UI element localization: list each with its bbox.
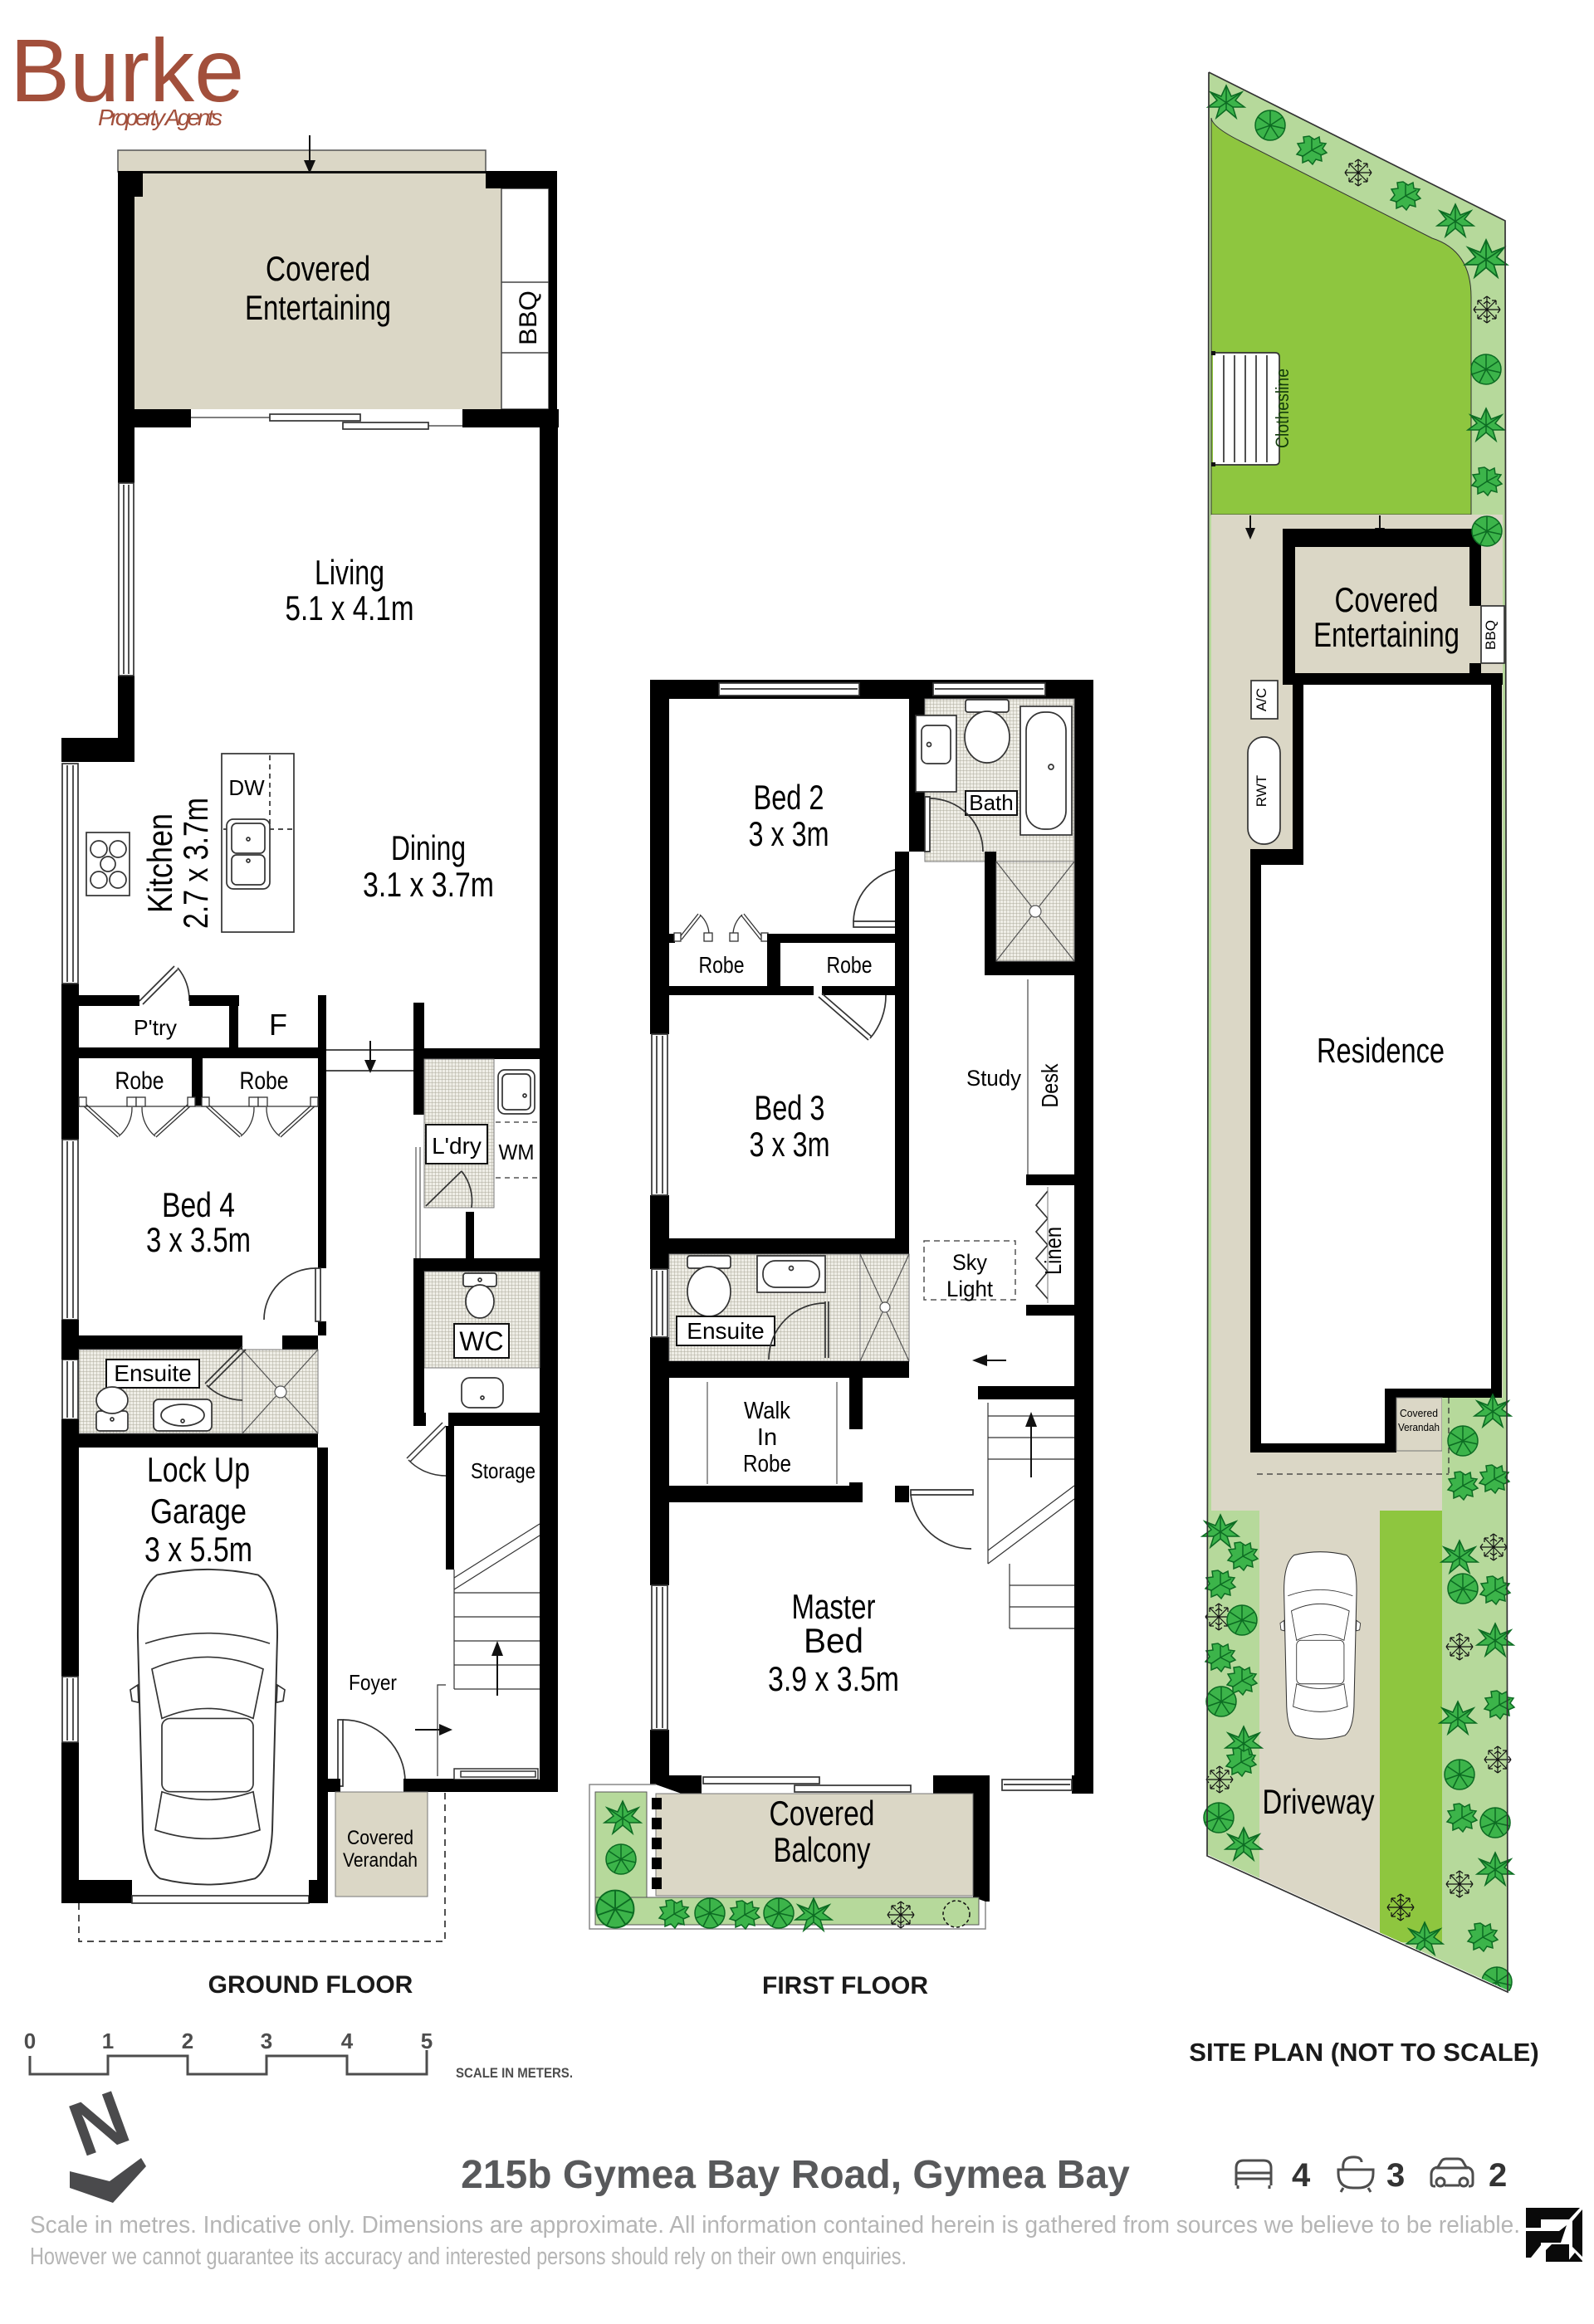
svg-text:RWT: RWT xyxy=(1254,775,1269,807)
svg-text:L'dry: L'dry xyxy=(432,1133,482,1159)
svg-text:However we cannot guarantee it: However we cannot guarantee its accuracy… xyxy=(30,2243,907,2270)
svg-text:A/C: A/C xyxy=(1254,688,1269,711)
svg-text:2.7 x 3.7m: 2.7 x 3.7m xyxy=(176,798,215,929)
svg-text:Foyer: Foyer xyxy=(349,1670,397,1695)
svg-text:Desk: Desk xyxy=(1037,1063,1063,1108)
svg-text:Living: Living xyxy=(315,553,384,592)
svg-text:SCALE IN METERS.: SCALE IN METERS. xyxy=(456,2065,573,2081)
svg-text:Robe: Robe xyxy=(699,952,745,978)
svg-text:Garage: Garage xyxy=(150,1492,247,1531)
svg-text:Balcony: Balcony xyxy=(774,1830,871,1869)
svg-text:Robe: Robe xyxy=(743,1451,791,1477)
svg-text:FIRST FLOOR: FIRST FLOOR xyxy=(762,1972,928,1999)
svg-text:DW: DW xyxy=(228,775,265,800)
svg-text:Study: Study xyxy=(966,1066,1021,1091)
svg-text:Covered: Covered xyxy=(1400,1407,1438,1419)
svg-text:Robe: Robe xyxy=(240,1067,289,1095)
svg-text:BBQ: BBQ xyxy=(515,290,542,345)
svg-text:3: 3 xyxy=(1386,2157,1405,2194)
svg-text:Kitchen: Kitchen xyxy=(140,813,179,913)
svg-text:BBQ: BBQ xyxy=(1483,620,1499,650)
svg-text:Light: Light xyxy=(946,1277,993,1301)
svg-text:WC: WC xyxy=(459,1326,503,1356)
svg-text:1: 1 xyxy=(102,2029,114,2053)
svg-text:5: 5 xyxy=(421,2029,433,2053)
svg-text:Covered: Covered xyxy=(266,249,370,288)
svg-text:Covered: Covered xyxy=(347,1827,413,1849)
svg-text:F: F xyxy=(269,1008,287,1042)
svg-text:4: 4 xyxy=(341,2029,354,2053)
svg-text:Robe: Robe xyxy=(827,952,873,978)
svg-text:Linen: Linen xyxy=(1040,1227,1066,1275)
svg-text:WM: WM xyxy=(499,1140,535,1164)
svg-text:GROUND FLOOR: GROUND FLOOR xyxy=(208,1971,413,1999)
svg-text:215b Gymea Bay Road, Gymea Bay: 215b Gymea Bay Road, Gymea Bay xyxy=(461,2153,1130,2197)
svg-text:Lock Up: Lock Up xyxy=(147,1450,250,1489)
svg-text:Ensuite: Ensuite xyxy=(687,1318,764,1344)
svg-text:Bed 4: Bed 4 xyxy=(162,1185,235,1224)
svg-text:Dining: Dining xyxy=(391,828,466,867)
svg-text:3 x 5.5m: 3 x 5.5m xyxy=(144,1530,252,1569)
svg-text:3 x 3m: 3 x 3m xyxy=(750,1125,830,1164)
svg-text:Covered: Covered xyxy=(770,1794,875,1833)
svg-text:Residence: Residence xyxy=(1317,1031,1445,1070)
svg-text:3 x 3m: 3 x 3m xyxy=(749,814,829,853)
svg-text:3 x 3.5m: 3 x 3.5m xyxy=(146,1220,251,1259)
svg-text:In: In xyxy=(757,1424,777,1451)
svg-text:2: 2 xyxy=(182,2029,193,2053)
svg-text:Bed 2: Bed 2 xyxy=(754,778,824,817)
svg-text:Bed 3: Bed 3 xyxy=(755,1088,825,1127)
svg-text:5.1 x 4.1m: 5.1 x 4.1m xyxy=(286,588,414,627)
svg-text:SITE PLAN (NOT TO SCALE): SITE PLAN (NOT TO SCALE) xyxy=(1189,2038,1538,2067)
svg-text:Verandah: Verandah xyxy=(343,1849,418,1872)
svg-text:Clothesline: Clothesline xyxy=(1272,369,1293,448)
svg-text:Ensuite: Ensuite xyxy=(114,1360,191,1386)
svg-text:3.9 x 3.5m: 3.9 x 3.5m xyxy=(768,1659,899,1698)
svg-text:0: 0 xyxy=(24,2029,36,2053)
svg-text:Master: Master xyxy=(792,1587,876,1626)
svg-text:Entertaining: Entertaining xyxy=(1313,615,1460,654)
svg-text:Driveway: Driveway xyxy=(1263,1782,1375,1821)
svg-text:Covered: Covered xyxy=(1335,580,1439,619)
svg-text:Robe: Robe xyxy=(115,1067,164,1095)
svg-text:3.1 x 3.7m: 3.1 x 3.7m xyxy=(363,865,494,904)
svg-text:Storage: Storage xyxy=(471,1458,535,1483)
svg-text:P'try: P'try xyxy=(134,1015,177,1040)
svg-text:3: 3 xyxy=(261,2029,272,2053)
svg-text:Verandah: Verandah xyxy=(1398,1421,1440,1433)
svg-text:Bath: Bath xyxy=(969,790,1014,815)
svg-text:Walk: Walk xyxy=(744,1398,790,1424)
svg-text:Bed: Bed xyxy=(804,1621,863,1660)
svg-text:Property Agents: Property Agents xyxy=(98,105,222,130)
svg-text:4: 4 xyxy=(1292,2157,1311,2194)
svg-text:2: 2 xyxy=(1489,2157,1507,2194)
svg-text:Entertaining: Entertaining xyxy=(245,288,391,327)
svg-text:Scale in metres. Indicative on: Scale in metres. Indicative only. Dimens… xyxy=(30,2212,1520,2239)
svg-text:Sky: Sky xyxy=(952,1250,987,1275)
